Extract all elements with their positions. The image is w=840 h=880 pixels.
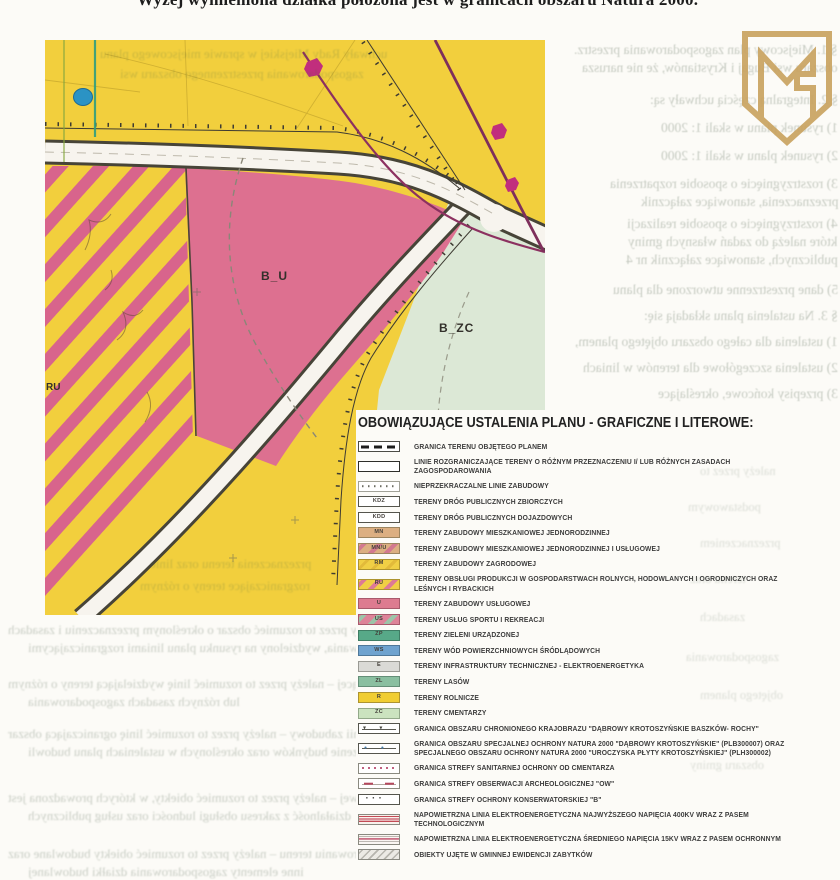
bleedthrough-text: 3) rozstrzygnięcie o sposobie rozpatrzen…	[610, 176, 838, 192]
legend-swatch-MN: MN	[358, 527, 400, 538]
bleedthrough-text: § 3. Na ustalenia planu składają się:	[644, 308, 838, 324]
legend-label: LINIE ROZGRANICZAJĄCE TERENY O RÓŻNYM PR…	[414, 457, 797, 477]
bleedthrough-text: działalność z zakresu obsługi ludności o…	[28, 808, 351, 824]
legend-row: ETERENY INFRASTRUKTURY TECHNICZNEJ - ELE…	[358, 661, 840, 672]
legend-row: RMTERENY ZABUDOWY ZAGRODOWEJ	[358, 559, 840, 570]
legend-row: OBIEKTY UJĘTE W GMINNEJ EWIDENCJI ZABYTK…	[358, 849, 840, 860]
legend-row: ZCTERENY CMENTARZY	[358, 708, 840, 719]
legend-swatch-sanitary	[358, 763, 400, 774]
legend-row: KDZTERENY DRÓG PUBLICZNYCH ZBIORCZYCH	[358, 496, 840, 507]
legend-swatch-KDZ: KDZ	[358, 496, 400, 507]
legend-swatch-dash-bold	[358, 441, 400, 452]
map-legend: OBOWIĄZUJĄCE USTALENIA PLANU - GRAFICZNE…	[356, 410, 840, 865]
legend-swatch-RM: RM	[358, 559, 400, 570]
legend-swatch-hv400	[358, 814, 400, 825]
legend-label: GRANICA OBSZARU CHRONIONEGO KRAJOBRAZU "…	[414, 724, 797, 734]
zone-label-bu: B_U	[261, 269, 288, 283]
legend-label: TERENY DRÓG PUBLICZNYCH ZBIORCZYCH	[414, 497, 797, 507]
legend-swatch-marker-dot	[358, 743, 400, 754]
legend-label: GRANICA STREFY OCHRONY KONSERWATORSKIEJ …	[414, 795, 797, 805]
legend-label: GRANICA STREFY SANITARNEJ OCHRONY OD CME…	[414, 763, 797, 773]
legend-label: OBIEKTY UJĘTE W GMINNEJ EWIDENCJI ZABYTK…	[414, 850, 797, 860]
bleedthrough-text: 3) przepisy końcowe, określające	[658, 386, 838, 402]
legend-swatch-U: U	[358, 598, 400, 609]
bleedthrough-text: 2) ustalenia szczegółowe dla terenów w l…	[583, 360, 838, 376]
legend-label: TERENY ZABUDOWY MIESZKANIOWEJ JEDNORODZI…	[414, 528, 797, 538]
legend-swatch-E: E	[358, 661, 400, 672]
legend-swatch-outline	[358, 461, 400, 472]
legend-row: USTERENY USŁUG SPORTU I REKREACJI	[358, 614, 840, 625]
legend-label: TERENY OBSŁUGI PRODUKCJI W GOSPODARSTWAC…	[414, 574, 797, 594]
legend-row: GRANICA OBSZARU SPECJALNEJ OCHRONY NATUR…	[358, 739, 840, 759]
legend-row: MNTERENY ZABUDOWY MIESZKANIOWEJ JEDNOROD…	[358, 527, 840, 538]
legend-swatch-conserv	[358, 794, 400, 805]
legend-items: GRANICA TERENU OBJĘTEGO PLANEMLINIE ROZG…	[356, 441, 840, 860]
gold-shield-monogram-icon	[737, 30, 837, 148]
legend-swatch-ZP: ZP	[358, 630, 400, 641]
legend-label: TERENY ZABUDOWY MIESZKANIOWEJ JEDNORODZI…	[414, 544, 797, 554]
bleedthrough-text: 4) rozstrzygnięcie o sposobie realizacji	[627, 216, 838, 232]
legend-row: NAPOWIETRZNA LINIA ELEKTROENERGETYCZNA Ś…	[358, 834, 840, 845]
company-logo	[737, 30, 837, 153]
legend-label: TERENY USŁUG SPORTU I REKREACJI	[414, 615, 797, 625]
bleedthrough-text: 5) dane przestrzenne utworzone dla planu	[613, 282, 838, 298]
legend-row: GRANICA STREFY SANITARNEJ OCHRONY OD CME…	[358, 763, 840, 774]
bleedthrough-text: inne elementy zagospodarowania działki b…	[28, 864, 304, 880]
legend-label: NAPOWIETRZNA LINIA ELEKTROENERGETYCZNA Ś…	[414, 834, 797, 844]
bleedthrough-text: które należą do zadań własnych gminy	[628, 234, 838, 250]
legend-swatch-KDD: KDD	[358, 512, 400, 523]
legend-row: GRANICA TERENU OBJĘTEGO PLANEM	[358, 441, 840, 452]
legend-swatch-R: R	[358, 692, 400, 703]
legend-label: GRANICA TERENU OBJĘTEGO PLANEM	[414, 442, 797, 452]
legend-swatch-arch	[358, 778, 400, 789]
legend-label: TERENY LASÓW	[414, 677, 797, 687]
legend-swatch-WS: WS	[358, 645, 400, 656]
legend-swatch-US: US	[358, 614, 400, 625]
legend-row: KDDTERENY DRÓG PUBLICZNYCH DOJAZDOWYCH	[358, 512, 840, 523]
legend-label: TERENY ROLNICZE	[414, 693, 797, 703]
road-junction	[480, 204, 508, 232]
bleedthrough-text: 1) ustalenia dla całego obszaru objętego…	[575, 334, 838, 350]
legend-swatch-RU: RU	[358, 579, 400, 590]
legend-swatch-hatch-gray	[358, 849, 400, 860]
legend-label: TERENY ZABUDOWY USŁUGOWEJ	[414, 599, 797, 609]
legend-label: GRANICA OBSZARU SPECJALNEJ OCHRONY NATUR…	[414, 739, 797, 759]
legend-row: ZPTERENY ZIELENI URZĄDZONEJ	[358, 630, 840, 641]
legend-label: NIEPRZEKRACZALNE LINIE ZABUDOWY	[414, 481, 797, 491]
document-title: Wyżej wymieniona działka położona jest w…	[85, 0, 750, 10]
legend-row: NAPOWIETRZNA LINIA ELEKTROENERGETYCZNA N…	[358, 810, 840, 830]
legend-label: TERENY DRÓG PUBLICZNYCH DOJAZDOWYCH	[414, 513, 797, 523]
legend-title: OBOWIĄZUJĄCE USTALENIA PLANU - GRAFICZNE…	[358, 415, 782, 431]
legend-row: NIEPRZEKRACZALNE LINIE ZABUDOWY	[358, 481, 840, 492]
legend-label: GRANICA STREFY OBSERWACJI ARCHEOLOGICZNE…	[414, 779, 797, 789]
legend-row: GRANICA OBSZARU CHRONIONEGO KRAJOBRAZU "…	[358, 723, 840, 734]
legend-swatch-MN/U: MN/U	[358, 543, 400, 554]
legend-row: GRANICA STREFY OCHRONY KONSERWATORSKIEJ …	[358, 794, 840, 805]
bleedthrough-text: publicznych, stanowiące załącznik nr 4	[626, 252, 838, 268]
legend-row: GRANICA STREFY OBSERWACJI ARCHEOLOGICZNE…	[358, 778, 840, 789]
legend-swatch-dotted	[358, 481, 400, 492]
bleedthrough-text: się wznoszenie budynków oraz określonych…	[28, 744, 409, 760]
legend-row: WSTERENY WÓD POWIERZCHNIOWYCH ŚRÓDLĄDOWY…	[358, 645, 840, 656]
legend-row: RTERENY ROLNICZE	[358, 692, 840, 703]
legend-swatch-marker-tri	[358, 723, 400, 734]
bleedthrough-text: przeznaczenia, stanowiące załącznik	[641, 194, 839, 210]
legend-row: LINIE ROZGRANICZAJĄCE TERENY O RÓŻNYM PR…	[358, 457, 840, 477]
scanned-document-page: Wyżej wymieniona działka położona jest w…	[0, 0, 840, 880]
legend-swatch-ZC: ZC	[358, 708, 400, 719]
legend-label: TERENY INFRASTRUKTURY TECHNICZNEJ - ELEK…	[414, 661, 797, 671]
legend-label: TERENY ZABUDOWY ZAGRODOWEJ	[414, 559, 797, 569]
pond	[74, 89, 93, 106]
legend-label: TERENY WÓD POWIERZCHNIOWYCH ŚRÓDLĄDOWYCH	[414, 646, 797, 656]
legend-label: TERENY ZIELENI URZĄDZONEJ	[414, 630, 797, 640]
legend-label: NAPOWIETRZNA LINIA ELEKTROENERGETYCZNA N…	[414, 810, 797, 830]
legend-row: RUTERENY OBSŁUGI PRODUKCJI W GOSPODARSTW…	[358, 574, 840, 594]
legend-row: UTERENY ZABUDOWY USŁUGOWEJ	[358, 598, 840, 609]
zone-label-bzc: B_ZC	[439, 321, 474, 335]
legend-row: MN/UTERENY ZABUDOWY MIESZKANIOWEJ JEDNOR…	[358, 543, 840, 554]
legend-swatch-ZL: ZL	[358, 676, 400, 687]
legend-swatch-mv15	[358, 834, 400, 845]
zone-label-ru: RU	[46, 382, 60, 393]
legend-label: TERENY CMENTARZY	[414, 708, 797, 718]
bleedthrough-text: lub różnych zasadach zagospodarowania	[28, 694, 240, 710]
legend-row: ZLTERENY LASÓW	[358, 676, 840, 687]
